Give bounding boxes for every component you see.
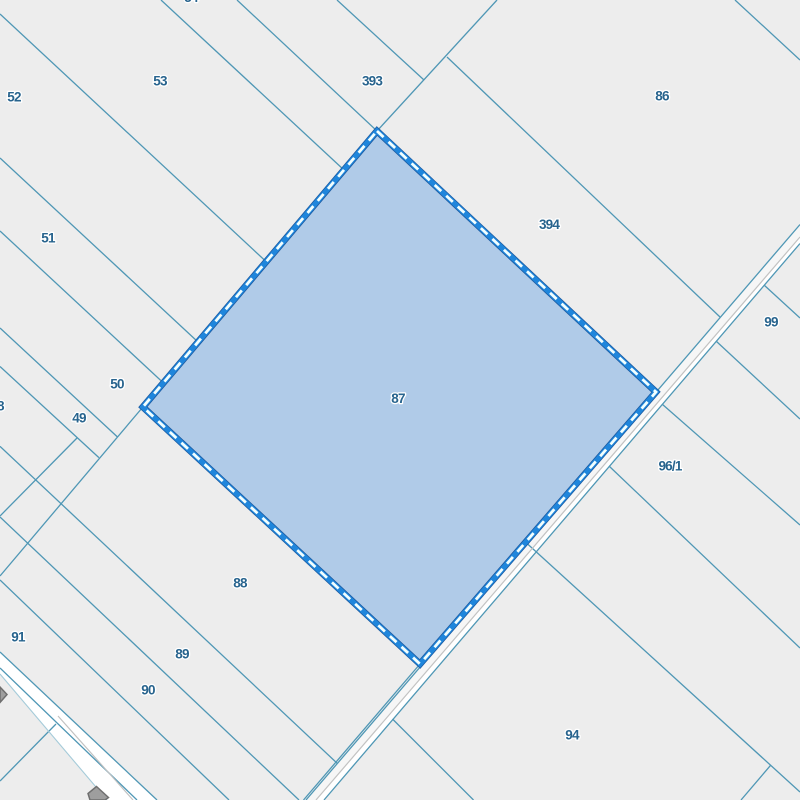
svg-text:394: 394 <box>539 217 560 232</box>
svg-text:86: 86 <box>655 89 670 104</box>
svg-text:96/1: 96/1 <box>658 459 682 474</box>
svg-text:50: 50 <box>110 377 124 392</box>
svg-text:94: 94 <box>565 728 580 743</box>
svg-text:51: 51 <box>41 231 56 246</box>
svg-text:53: 53 <box>153 74 168 89</box>
svg-text:91: 91 <box>11 630 26 645</box>
svg-text:87: 87 <box>391 391 405 406</box>
svg-text:393: 393 <box>362 74 383 89</box>
svg-text:99: 99 <box>764 315 778 330</box>
svg-text:89: 89 <box>175 647 189 662</box>
svg-text:52: 52 <box>7 90 21 105</box>
svg-text:88: 88 <box>233 576 248 591</box>
svg-text:54: 54 <box>184 0 199 5</box>
svg-text:49: 49 <box>72 411 86 426</box>
svg-text:90: 90 <box>141 683 155 698</box>
